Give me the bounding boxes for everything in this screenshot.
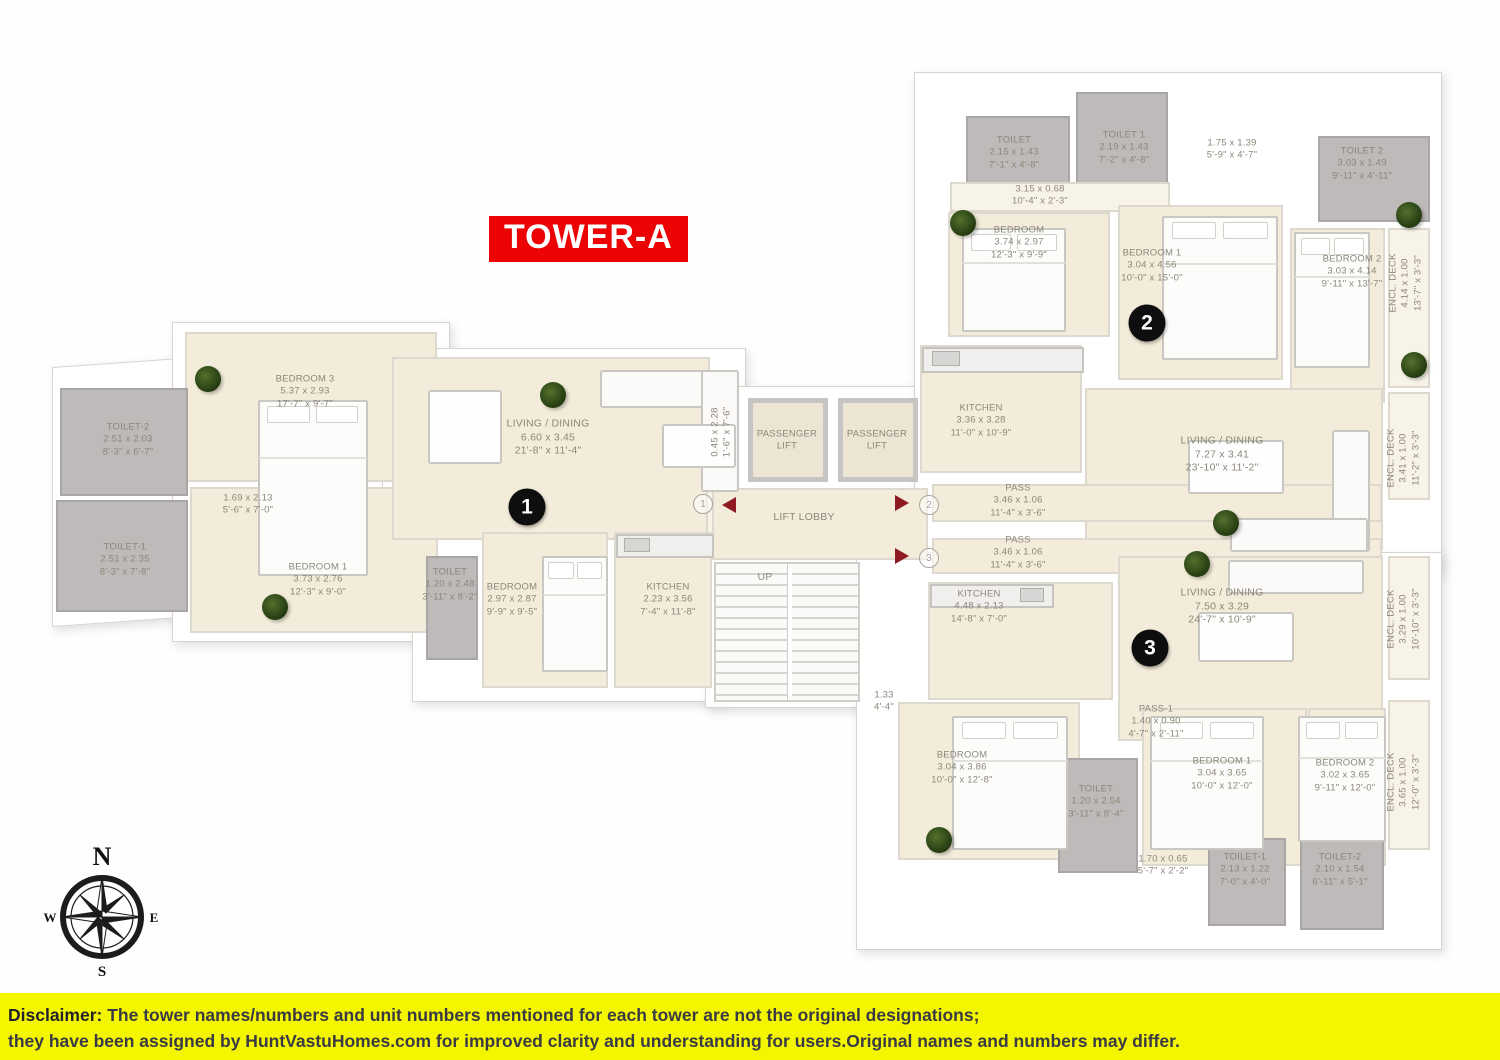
room-label-line: 3.46 x 1.06	[990, 495, 1045, 507]
room-label-line: BEDROOM	[991, 224, 1047, 236]
room-label-line: PASSENGER LIFT	[757, 429, 817, 454]
bed-fold	[259, 457, 367, 459]
room-label-line: 3.04 x 3.86	[931, 762, 992, 774]
plant-icon	[950, 210, 976, 236]
plant-icon	[195, 366, 221, 392]
room-label-line: KITCHEN	[951, 402, 1012, 414]
label-u1-bedroom1: BEDROOM 13.73 x 2.7612'-3" x 9'-0"	[289, 561, 348, 598]
room-label-line: PASS	[990, 534, 1045, 546]
room-label-line: 2.19 x 1.43	[1099, 142, 1149, 154]
label-u3-toilet1: TOILET-12.13 x 1.227'-0" x 4'-0"	[1220, 851, 1270, 888]
room-label-line: 1.69 x 2.13	[223, 493, 273, 505]
room-label-line: LIVING / DINING	[1181, 435, 1264, 449]
room-label-line: 21'-8" x 11'-4"	[507, 445, 590, 459]
room-label-line: 3.29 x 1.00	[1398, 588, 1410, 649]
label-u2-pass-top: 3.15 x 0.6810'-4" x 2'-3"	[1012, 184, 1068, 209]
label-u3-bedroom1: BEDROOM 13.04 x 3.6510'-0" x 12'-0"	[1191, 755, 1252, 792]
room-label-line: 3.02 x 3.65	[1315, 770, 1376, 782]
label-u1-toilet: TOILET1.20 x 2.483'-11" x 8'-2"	[422, 566, 477, 603]
room-label-line: BEDROOM 3	[276, 373, 335, 385]
room-label-line: TOILET-2	[1312, 851, 1367, 863]
door-number-1: 1	[693, 494, 713, 514]
label-u2-living: LIVING / DINING7.27 x 3.4123'-10" x 11'-…	[1181, 435, 1264, 476]
room-label-line: 10'-4" x 2'-3"	[1012, 196, 1068, 208]
room-label-line: TOILET	[989, 134, 1039, 146]
room-label-line: 3.15 x 0.68	[1012, 184, 1068, 196]
room-label-line: ENCL. DECK	[1385, 752, 1397, 811]
label-u2-bedroom2: BEDROOM 23.03 x 4.149'-11" x 13'-7"	[1322, 253, 1383, 290]
room-label-line: 2.13 x 1.22	[1220, 864, 1270, 876]
sofa	[1230, 518, 1368, 552]
room-label-line: 1'-6" x 7'-6"	[722, 407, 734, 457]
room-label-line: ENCL. DECK	[1387, 253, 1399, 312]
pillow	[577, 562, 603, 579]
room-label-line: 12'-3" x 9'-0"	[289, 586, 348, 598]
room-label-line: 6.60 x 3.45	[507, 431, 590, 445]
kitchen-sink	[932, 351, 960, 366]
label-u3-pass: PASS3.46 x 1.0611'-4" x 3'-6"	[990, 534, 1045, 571]
kitchen-sink	[624, 538, 650, 552]
room-label-line: ENCL. DECK	[1385, 428, 1397, 487]
room-label-line: 5.37 x 2.93	[276, 386, 335, 398]
label-u3-bedroom: BEDROOM3.04 x 3.8610'-0" x 12'-8"	[931, 749, 992, 786]
room-label-line: 10'-10" x 3'-3"	[1410, 588, 1422, 649]
label-u2-deck-top: ENCL. DECK4.14 x 1.0013'-7" x 3'-3"	[1387, 253, 1424, 312]
room-label-line: LIVING / DINING	[507, 418, 590, 432]
room-label-line: 23'-10" x 11'-2"	[1181, 462, 1264, 476]
label-u3-kitchen: KITCHEN4.48 x 2.1314'-8" x 7'-0"	[951, 588, 1007, 625]
kitchen-sink	[1020, 588, 1044, 602]
room-label-line: 11'-0" x 10'-9"	[951, 427, 1012, 439]
room-label-line: 3.04 x 3.65	[1191, 768, 1252, 780]
room-label-line: 1.40 x 0.90	[1128, 716, 1183, 728]
plant-icon	[1401, 352, 1427, 378]
label-u1-toilet1: TOILET-12.51 x 2.358'-3" x 7'-8"	[100, 541, 150, 578]
room-label-line: 7'-2" x 4'-8"	[1099, 154, 1149, 166]
room-label-line: 9'-9" x 9'-5"	[487, 606, 538, 618]
room-label-line: 11'-4" x 3'-6"	[990, 507, 1045, 519]
pillow	[1334, 238, 1363, 255]
room-label-line: 8'-3" x 6'-7"	[103, 446, 153, 458]
room-label-line: 1.33	[874, 690, 894, 702]
label-u2-kitchen: KITCHEN3.36 x 3.2811'-0" x 10'-9"	[951, 402, 1012, 439]
label-u1-deck: 0.45 x 2.281'-6" x 7'-6"	[710, 407, 735, 457]
room-label-line: 3'-11" x 8'-2"	[422, 591, 477, 603]
room-label-line: 3'-11" x 8'-4"	[1068, 808, 1123, 820]
pillow	[1301, 238, 1330, 255]
label-u1-bedroom: BEDROOM2.97 x 2.879'-9" x 9'-5"	[487, 581, 538, 618]
room-label-line: 7.50 x 3.29	[1181, 600, 1264, 614]
compass-w-label: W	[44, 910, 57, 925]
pillow	[1172, 222, 1217, 239]
room-label-line: 4'-4"	[874, 702, 894, 714]
label-u2-toilet: TOILET2.15 x 1.437'-1" x 4'-8"	[989, 134, 1039, 171]
room-label-line: 3.41 x 1.00	[1398, 428, 1410, 487]
label-u3-deck-bot: ENCL. DECK3.65 x 1.0012'-0" x 3'-3"	[1385, 752, 1422, 811]
plant-icon	[1184, 551, 1210, 577]
disclaimer-line1: The tower names/numbers and unit numbers…	[102, 1005, 979, 1025]
room-label-line: 3.46 x 1.06	[990, 547, 1045, 559]
room-label-line: 1.20 x 2.48	[422, 579, 477, 591]
room-label-line: 17'-7" x 9'-7"	[276, 398, 335, 410]
room-label-line: 10'-0" x 12'-0"	[1191, 780, 1252, 792]
room-label-line: UP	[758, 571, 773, 585]
room-label-line: KITCHEN	[951, 588, 1007, 600]
room-label-line: LIFT LOBBY	[773, 511, 834, 525]
pillow	[1223, 222, 1268, 239]
label-u3-living: LIVING / DINING7.50 x 3.2924'-7" x 10'-9…	[1181, 587, 1264, 628]
label-u3-deck-mid: ENCL. DECK3.29 x 1.0010'-10" x 3'-3"	[1385, 588, 1422, 649]
room-label-line: 2.51 x 2.35	[100, 554, 150, 566]
label-u2-bedroom: BEDROOM3.74 x 2.9712'-3" x 9'-9"	[991, 224, 1047, 261]
room-label-line: 1.75 x 1.39	[1207, 138, 1257, 150]
room-label-line: TOILET	[422, 566, 477, 578]
door-number-3: 3	[919, 548, 939, 568]
room-label-line: 7.27 x 3.41	[1181, 448, 1264, 462]
label-lift-lobby: LIFT LOBBY	[773, 511, 834, 525]
compass-n-label: N	[93, 843, 112, 871]
room-label-line: ENCL. DECK	[1385, 588, 1397, 649]
room-label-line: TOILET 2	[1332, 145, 1392, 157]
room-label-line: 7'-4" x 11'-8"	[640, 606, 695, 618]
room-label-line: BEDROOM	[487, 581, 538, 593]
room-label-line: KITCHEN	[640, 581, 695, 593]
room-label-line: BEDROOM 1	[1191, 755, 1252, 767]
room-label-line: 9'-11" x 4'-11"	[1332, 170, 1392, 182]
room-label-line: 5'-9" x 4'-7"	[1207, 150, 1257, 162]
room-label-line: BEDROOM 1	[289, 561, 348, 573]
label-u2-entry: 1.75 x 1.395'-9" x 4'-7"	[1207, 138, 1257, 163]
room-label-line: BEDROOM 2	[1322, 253, 1383, 265]
label-u1-bedroom3: BEDROOM 35.37 x 2.9317'-7" x 9'-7"	[276, 373, 335, 410]
room-label-line: TOILET 1	[1099, 129, 1149, 141]
compass-icon: N W E S	[42, 843, 162, 979]
room-label-line: BEDROOM 1	[1121, 247, 1182, 259]
room-label-line: 3.65 x 1.00	[1398, 752, 1410, 811]
room-label-line: 4.14 x 1.00	[1400, 253, 1412, 312]
room-label-line: TOILET	[1068, 783, 1123, 795]
tower-name-badge: TOWER-A	[489, 216, 688, 262]
room-label-line: 4.48 x 2.13	[951, 601, 1007, 613]
bed-fold	[963, 262, 1065, 264]
room-label-line: 3.74 x 2.97	[991, 237, 1047, 249]
pillow	[1210, 722, 1254, 739]
staircase	[714, 562, 860, 702]
label-passenger-lift-b: PASSENGER LIFT	[847, 429, 907, 454]
room-label-line: 4'-7" x 2'-11"	[1128, 728, 1183, 740]
plant-icon	[926, 827, 952, 853]
room-label-line: PASSENGER LIFT	[847, 429, 907, 454]
pillow	[548, 562, 574, 579]
room-label-line: BEDROOM	[931, 749, 992, 761]
room-label-line: 5'-6" x 7'-0"	[223, 505, 273, 517]
room-label-line: 11'-4" x 3'-6"	[990, 559, 1045, 571]
plant-icon	[262, 594, 288, 620]
door-number-2: 2	[919, 495, 939, 515]
room-label-line: 14'-8" x 7'-0"	[951, 613, 1007, 625]
label-stairs-up: UP	[758, 571, 773, 585]
label-u1-living: LIVING / DINING6.60 x 3.4521'-8" x 11'-4…	[507, 418, 590, 459]
plant-icon	[540, 382, 566, 408]
unit-badge-1: 1	[509, 489, 546, 526]
label-u2-bedroom1: BEDROOM 13.04 x 4.5610'-0" x 15'-0"	[1121, 247, 1182, 284]
bed-furniture	[542, 556, 608, 672]
label-u3-toilet2: TOILET-22.10 x 1.546'-11" x 5'-1"	[1312, 851, 1367, 888]
label-u3-toilet: TOILET1.20 x 2.543'-11" x 8'-4"	[1068, 783, 1123, 820]
disclaimer-line2: they have been assigned by HuntVastuHome…	[8, 1031, 1180, 1051]
room-label-line: 6'-11" x 5'-1"	[1312, 876, 1367, 888]
room-label-line: 9'-11" x 13'-7"	[1322, 278, 1383, 290]
unit-badge-3: 3	[1132, 630, 1169, 667]
room-label-line: 2.51 x 2.03	[103, 434, 153, 446]
room-label-line: PASS	[990, 482, 1045, 494]
room-label-line: 3.03 x 1.49	[1332, 158, 1392, 170]
room-label-line: 10'-0" x 15'-0"	[1121, 272, 1182, 284]
room-label-line: 2.10 x 1.54	[1312, 864, 1367, 876]
room-label-line: 8'-3" x 7'-8"	[100, 566, 150, 578]
room-label-line: 9'-11" x 12'-0"	[1315, 782, 1376, 794]
pillow	[1013, 722, 1058, 739]
compass-rose: N W E S	[42, 843, 162, 984]
room-label-line: 3.04 x 4.56	[1121, 260, 1182, 272]
door-arrow-right-icon	[895, 495, 909, 511]
bed-furniture	[258, 400, 368, 576]
compass-e-label: E	[150, 910, 159, 925]
door-arrow-left-icon	[722, 497, 736, 513]
room-label-line: 2.97 x 2.87	[487, 594, 538, 606]
label-u2-toilet2: TOILET 23.03 x 1.499'-11" x 4'-11"	[1332, 145, 1392, 182]
room-label-line: TOILET-1	[100, 541, 150, 553]
room-label-line: 12'-3" x 9'-9"	[991, 249, 1047, 261]
plant-icon	[1396, 202, 1422, 228]
room-label-line: LIVING / DINING	[1181, 587, 1264, 601]
label-u2-toilet1: TOILET 12.19 x 1.437'-2" x 4'-8"	[1099, 129, 1149, 166]
label-u1-pass: 1.69 x 2.135'-6" x 7'-0"	[223, 493, 273, 518]
room-label-line: 3.36 x 3.28	[951, 415, 1012, 427]
unit-badge-2: 2	[1129, 305, 1166, 342]
room-label-line: 1.20 x 2.54	[1068, 796, 1123, 808]
disclaimer-bar: Disclaimer: The tower names/numbers and …	[0, 993, 1500, 1060]
pillow	[1306, 722, 1340, 739]
bed-furniture	[1294, 232, 1370, 368]
room-label-line: PASS-1	[1128, 703, 1183, 715]
disclaimer-label: Disclaimer:	[8, 1005, 102, 1025]
label-u3-pass1: PASS-11.40 x 0.904'-7" x 2'-11"	[1128, 703, 1183, 740]
room-label-line: 13'-7" x 3'-3"	[1412, 253, 1424, 312]
label-core-pass: 1.334'-4"	[874, 690, 894, 715]
room-label-line: TOILET-1	[1220, 851, 1270, 863]
room-label-line: 1.70 x 0.65	[1138, 854, 1188, 866]
room-label-line: 7'-1" x 4'-8"	[989, 159, 1039, 171]
room-label-line: 7'-0" x 4'-0"	[1220, 876, 1270, 888]
label-u2-pass: PASS3.46 x 1.0611'-4" x 3'-6"	[990, 482, 1045, 519]
room-label-line: 3.73 x 2.76	[289, 574, 348, 586]
room-label-line: 10'-0" x 12'-8"	[931, 774, 992, 786]
floorplan-canvas: BEDROOM 35.37 x 2.9317'-7" x 9'-7" TOILE…	[0, 0, 1500, 1060]
label-u3-bedroom2: BEDROOM 23.02 x 3.659'-11" x 12'-0"	[1315, 757, 1376, 794]
label-u1-toilet2: TOILET-22.51 x 2.038'-3" x 6'-7"	[103, 421, 153, 458]
room-label-line: 11'-2" x 3'-3"	[1410, 428, 1422, 487]
room-label-line: 2.15 x 1.43	[989, 147, 1039, 159]
compass-s-label: S	[98, 964, 106, 979]
room-label-line: TOILET-2	[103, 421, 153, 433]
bed-fold	[543, 594, 607, 596]
room-label-line: 3.03 x 4.14	[1322, 266, 1383, 278]
room-label-line: 12'-0" x 3'-3"	[1410, 752, 1422, 811]
label-u1-kitchen: KITCHEN2.23 x 3.567'-4" x 11'-8"	[640, 581, 695, 618]
dining-table	[428, 390, 502, 464]
room-label-line: 0.45 x 2.28	[710, 407, 722, 457]
pillow	[962, 722, 1007, 739]
label-u2-deck-mid: ENCL. DECK3.41 x 1.0011'-2" x 3'-3"	[1385, 428, 1422, 487]
pillow	[1345, 722, 1379, 739]
bed-furniture	[1162, 216, 1278, 360]
room-label-line: 5'-7" x 2'-2"	[1138, 866, 1188, 878]
room-label-line: 2.23 x 3.56	[640, 594, 695, 606]
label-passenger-lift-a: PASSENGER LIFT	[757, 429, 817, 454]
door-arrow-right-icon	[895, 548, 909, 564]
label-u3-entry: 1.70 x 0.655'-7" x 2'-2"	[1138, 854, 1188, 879]
room-label-line: BEDROOM 2	[1315, 757, 1376, 769]
room-label-line: 24'-7" x 10'-9"	[1181, 614, 1264, 628]
plant-icon	[1213, 510, 1239, 536]
